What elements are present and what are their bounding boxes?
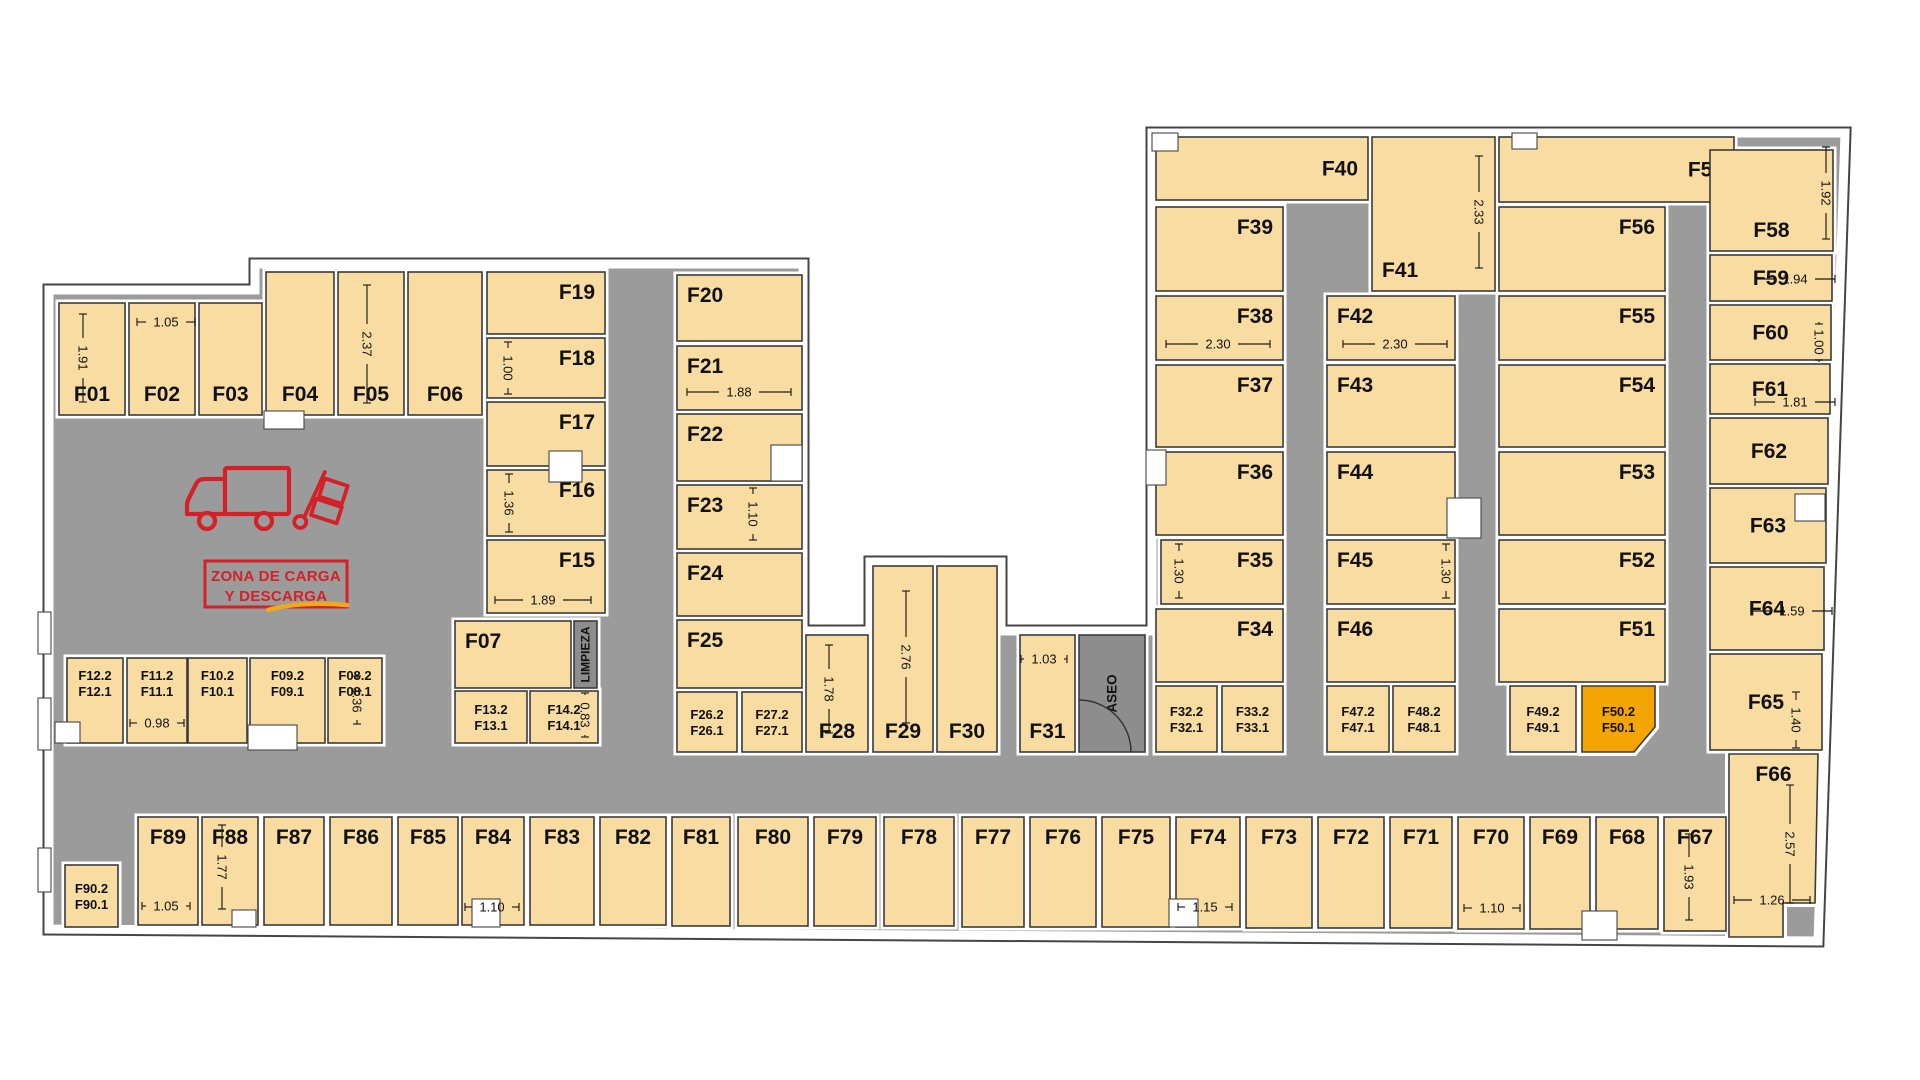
room-label: F10.2 [201,668,234,683]
room-label: F33.2 [1236,704,1269,719]
room-F21[interactable]: F21 [677,346,802,410]
room-label: F21 [687,355,724,378]
room-label: F51 [1619,618,1656,641]
room-label: F02 [144,383,180,406]
room-label: F42 [1337,305,1373,328]
loading-zone-label-line1: ZONA DE CARGA [211,568,341,585]
room-label: F13.1 [474,718,507,733]
room-label: F05 [353,383,390,406]
service-room-label: ASEO [1105,674,1120,712]
room-label: F09.1 [271,684,304,699]
room-F17[interactable]: F17 [487,402,605,466]
room-F01[interactable]: F01 [59,303,125,415]
pillar [1512,133,1537,149]
dimension-label: 1.94 [1782,272,1807,287]
room-label: F87 [276,826,312,849]
room-F26[interactable]: F26.2F26.1 [677,692,737,752]
room-label: F03 [212,383,248,406]
room-F64[interactable]: F64 [1710,567,1824,650]
room-label: F17 [559,411,595,434]
room-label: F26.2 [690,707,723,722]
room-F13[interactable]: F13.2F13.1 [455,691,527,743]
room-label: F47.2 [1341,704,1374,719]
room-F49[interactable]: F49.2F49.1 [1510,686,1576,752]
dimension-label: 1.77 [215,854,230,879]
room-label: F48.1 [1407,720,1440,735]
room-label: F50.2 [1602,704,1635,719]
room-F59[interactable]: F59 [1710,255,1832,301]
room-label: F12.1 [78,684,111,699]
room-label: F38 [1237,305,1274,328]
room-label: F14.2 [547,702,580,717]
dimension-label: 1.05 [153,899,178,914]
room-label: F79 [827,826,863,849]
room-F51[interactable]: F51 [1499,609,1665,682]
room-label: F78 [901,826,938,849]
room-label: F39 [1237,216,1273,239]
room-label: F43 [1337,374,1373,397]
pillar [55,722,80,743]
room-label: F27.1 [755,723,788,738]
room-label: F28 [819,720,856,743]
room-F72[interactable]: F72 [1318,817,1384,928]
room-label: F12.2 [78,668,111,683]
room-F34[interactable]: F34 [1156,609,1283,682]
room-label: F35 [1237,549,1274,572]
dimension-label: 0.83 [578,702,593,727]
room-label: F11.1 [141,684,174,699]
room-F19[interactable]: F19 [487,272,605,334]
room-F40[interactable]: F40 [1156,137,1368,200]
room-F83[interactable]: F83 [530,817,594,925]
room-label: F23 [687,494,723,517]
room-label: F41 [1382,259,1419,282]
room-F36[interactable]: F36 [1156,452,1283,535]
dimension-label: 1.91 [76,345,91,370]
room-label: F67 [1677,826,1713,849]
room-label: F74 [1190,826,1227,849]
room-label: F54 [1619,374,1656,397]
room-label: F65 [1748,691,1785,714]
floor-plan: F01F02F03F04F05F06F19F18F17F16F15F07F13.… [0,0,1920,1080]
room-F39[interactable]: F39 [1156,207,1283,291]
dimension-label: 1.92 [1819,180,1834,205]
dimension-label: 1.10 [746,501,761,526]
room-F24[interactable]: F24 [677,553,802,616]
room-label: F32.1 [1170,720,1203,735]
room-F33[interactable]: F33.2F33.1 [1222,686,1283,752]
room-label: F71 [1403,826,1440,849]
pillar [1146,450,1166,485]
room-label: F90.2 [75,881,108,896]
room-F62[interactable]: F62 [1710,418,1828,484]
room-F45[interactable]: F45 [1327,540,1455,604]
dimension-label: 1.36 [350,687,365,712]
room-label: F40 [1322,158,1358,181]
room-F54[interactable]: F54 [1499,365,1665,447]
room-F73[interactable]: F73 [1246,817,1312,928]
room-label: F04 [282,383,319,406]
dimension-label: 2.37 [360,331,375,356]
dimension-label: 1.40 [1789,707,1804,732]
room-label: F81 [683,826,720,849]
pillar [38,698,51,750]
dimension-label: 2.33 [1472,199,1487,224]
room-F52[interactable]: F52 [1499,540,1665,604]
room-F20[interactable]: F20 [677,275,802,341]
room-label: F55 [1619,305,1656,328]
room-F04[interactable]: F04 [266,272,334,415]
room-label: F27.2 [755,707,788,722]
room-F37[interactable]: F37 [1156,365,1283,447]
room-label: F36 [1237,461,1273,484]
room-label: F48.2 [1407,704,1440,719]
pillar [38,848,51,892]
dimension-label: 1.93 [1682,864,1697,889]
room-label: F34 [1237,618,1274,641]
room-label: F82 [615,826,651,849]
room-F43[interactable]: F43 [1327,365,1455,447]
dimension-label: 1.15 [1192,900,1217,915]
room-F90[interactable]: F90.2F90.1 [65,865,118,927]
pillar [1582,911,1617,940]
room-label: F24 [687,562,724,585]
room-F69[interactable]: F69 [1530,817,1590,929]
room-label: F31 [1029,720,1066,743]
pillar [1795,494,1825,521]
room-label: F56 [1619,216,1655,239]
room-F56[interactable]: F56 [1499,207,1665,291]
service-room-limpieza: LIMPIEZA [574,621,597,688]
room-label: F30 [949,720,985,743]
dimension-label: 2.30 [1382,337,1407,352]
dimension-label: 1.26 [1759,893,1784,908]
room-label: F11.2 [141,668,174,683]
room-F71[interactable]: F71 [1390,817,1452,928]
room-F48[interactable]: F48.2F48.1 [1393,686,1455,752]
room-F46[interactable]: F46 [1327,609,1455,682]
pillar [264,411,304,429]
pillar [549,451,582,482]
dimension-label: 2.76 [899,644,914,669]
room-label: F26.1 [690,723,723,738]
room-F82[interactable]: F82 [600,817,666,925]
floor-plan-page: F01F02F03F04F05F06F19F18F17F16F15F07F13.… [0,0,1920,1080]
room-label: F33.1 [1236,720,1269,735]
dimension-label: 2.30 [1205,337,1230,352]
dimension-label: 1.10 [1479,901,1504,916]
room-label: F72 [1333,826,1369,849]
room-label: F22 [687,423,723,446]
room-label: F73 [1261,826,1297,849]
room-F81[interactable]: F81 [672,817,730,926]
dimension-label: 1.59 [1779,604,1804,619]
room-label: F77 [975,826,1011,849]
room-F77[interactable]: F77 [962,817,1024,927]
room-F07[interactable]: F07 [455,621,571,688]
room-F23[interactable]: F23 [677,485,802,549]
room-F10[interactable]: F10.2F10.1 [188,658,247,743]
room-label: F76 [1045,826,1081,849]
room-F30[interactable]: F30 [937,566,997,752]
room-F65[interactable]: F65 [1710,654,1822,750]
dimension-label: 1.30 [1439,558,1454,583]
dimension-label: 1.00 [501,355,516,380]
room-label: F32.2 [1170,704,1203,719]
room-label: F07 [465,630,501,653]
service-room-aseo: ASEO [1079,635,1145,752]
dimension-label: 1.88 [726,385,751,400]
room-F06[interactable]: F06 [408,272,482,415]
room-label: F49.2 [1526,704,1559,719]
room-F78[interactable]: F78 [884,817,954,926]
pillar [771,445,802,481]
room-F27[interactable]: F27.2F27.1 [742,692,802,752]
room-label: F20 [687,284,723,307]
service-room-label: LIMPIEZA [579,626,593,682]
room-label: F66 [1755,763,1791,786]
room-F32[interactable]: F32.2F32.1 [1156,686,1217,752]
room-F47[interactable]: F47.2F47.1 [1327,686,1389,752]
room-label: F52 [1619,549,1655,572]
room-label: F90.1 [75,897,108,912]
room-label: F50.1 [1602,720,1635,735]
dimension-label: 0.98 [144,716,169,731]
room-label: F89 [150,826,186,849]
room-label: F15 [559,549,596,572]
room-F61[interactable]: F61 [1710,364,1830,414]
dimension-label: 1.10 [479,900,504,915]
room-F53[interactable]: F53 [1499,452,1665,535]
dimension-label: 1.36 [502,490,517,515]
dimension-label: 1.03 [1031,652,1056,667]
room-F86[interactable]: F86 [330,817,392,925]
room-label: F75 [1118,826,1155,849]
room-label: F44 [1337,461,1374,484]
pillar [1447,498,1481,538]
room-label: F18 [559,347,596,370]
room-label: F46 [1337,618,1373,641]
room-label: F10.1 [201,684,234,699]
room-label: F88 [212,826,249,849]
room-label: F62 [1751,440,1787,463]
room-label: F85 [410,826,447,849]
room-label: F69 [1542,826,1578,849]
room-label: F60 [1752,322,1788,345]
dimension-label: 1.05 [153,315,178,330]
room-label: F25 [687,629,724,652]
pillar [248,725,297,750]
room-F44[interactable]: F44 [1327,452,1455,535]
room-label: F13.2 [474,702,507,717]
room-label: F63 [1750,515,1786,538]
dimension-label: 1.89 [530,593,555,608]
room-label: F70 [1473,826,1509,849]
room-label: F14.1 [547,718,580,733]
room-F25[interactable]: F25 [677,620,802,688]
room-F76[interactable]: F76 [1030,817,1096,927]
room-label: F84 [475,826,512,849]
room-label: F47.1 [1341,720,1374,735]
pillar [232,910,256,927]
room-F79[interactable]: F79 [814,817,876,926]
room-F58[interactable]: F58 [1710,150,1833,251]
pillar [1152,133,1178,151]
room-label: F19 [559,281,595,304]
room-label: F58 [1753,219,1790,242]
dimension-label: 1.81 [1782,395,1807,410]
room-F55[interactable]: F55 [1499,296,1665,360]
room-label: F53 [1619,461,1655,484]
dimension-label: 1.00 [1812,329,1827,354]
room-label: F68 [1609,826,1646,849]
room-F03[interactable]: F03 [199,303,262,415]
room-label: F86 [343,826,379,849]
room-F75[interactable]: F75 [1102,817,1170,927]
room-label: F83 [544,826,580,849]
room-F80[interactable]: F80 [738,817,808,926]
room-label: F09.2 [271,668,304,683]
room-F85[interactable]: F85 [398,817,458,925]
room-label: F37 [1237,374,1273,397]
room-label: F06 [427,383,463,406]
room-label: F49.1 [1526,720,1559,735]
room-label: F45 [1337,549,1374,572]
dimension-label: 2.57 [1783,831,1798,856]
room-F87[interactable]: F87 [264,817,324,925]
room-label: F80 [755,826,791,849]
dimension-label: 1.30 [1172,558,1187,583]
dimension-label: 1.78 [822,676,837,701]
pillar [38,612,51,654]
